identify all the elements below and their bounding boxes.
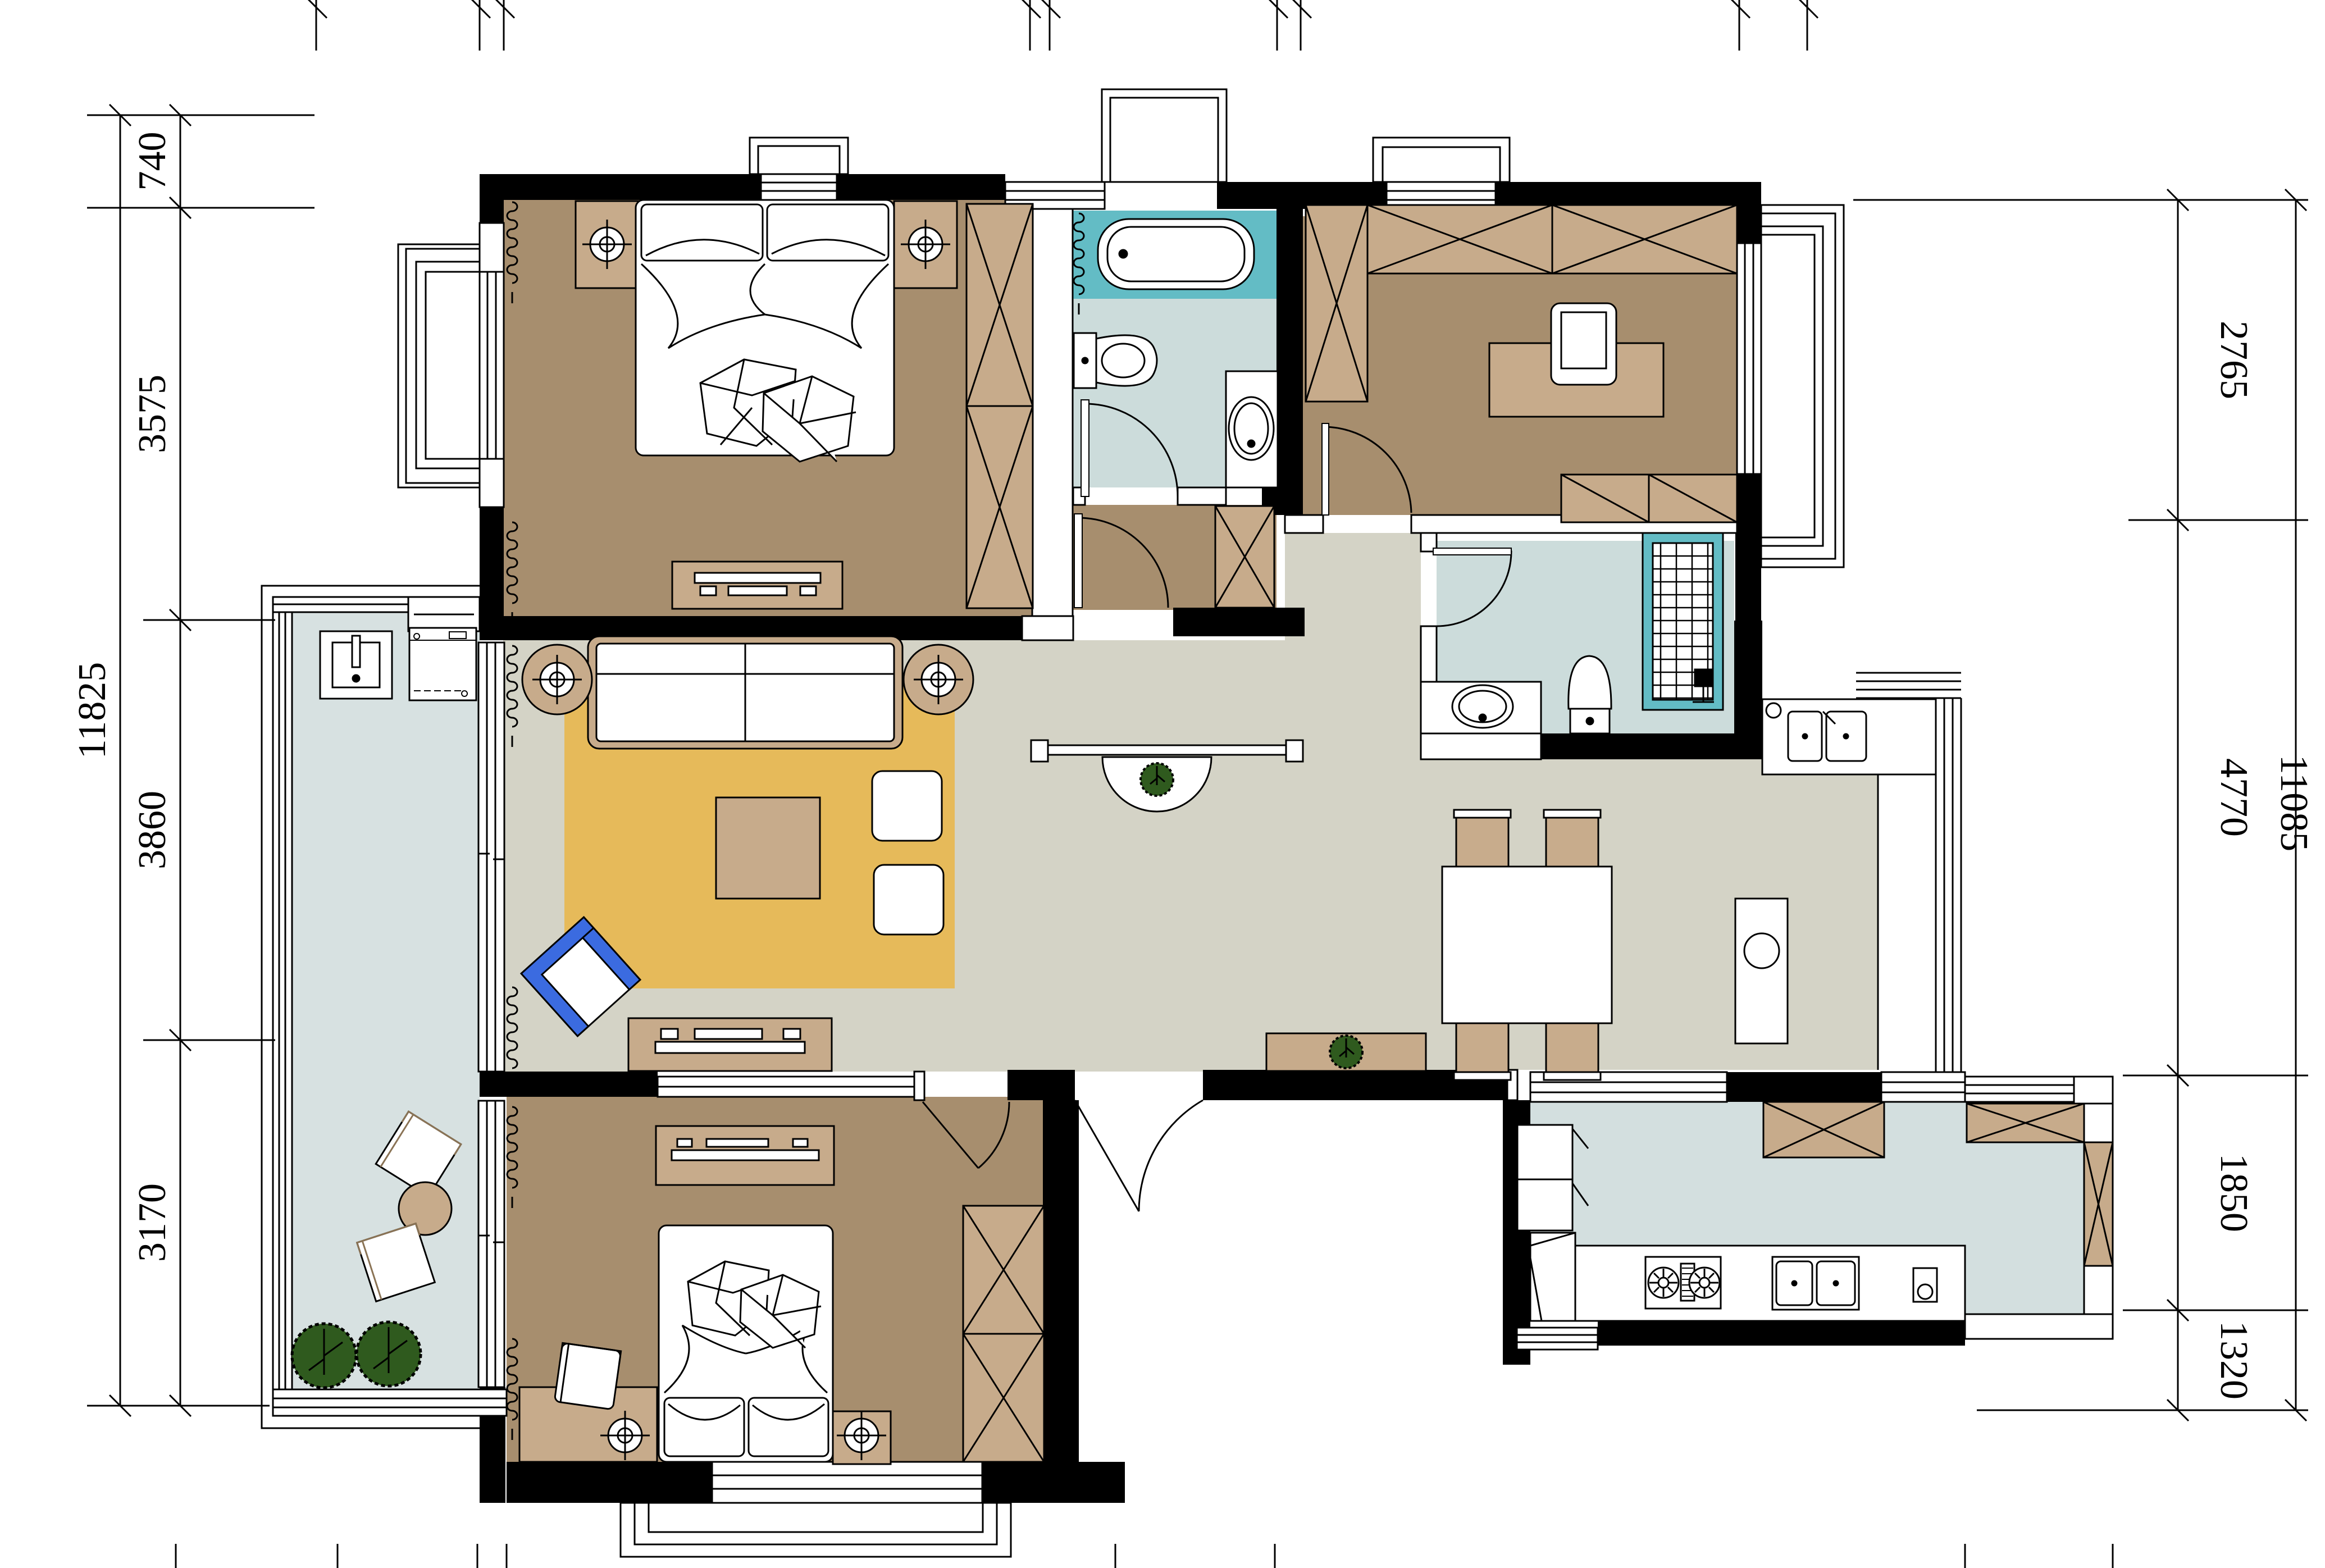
svg-text:11825: 11825 <box>71 662 114 759</box>
svg-text:1850: 1850 <box>2212 1154 2255 1232</box>
svg-text:740: 740 <box>131 132 174 191</box>
svg-text:3170: 3170 <box>131 1183 174 1262</box>
svg-text:4770: 4770 <box>2212 758 2255 837</box>
svg-text:3575: 3575 <box>131 375 174 453</box>
svg-text:11085: 11085 <box>2272 755 2315 851</box>
svg-text:1320: 1320 <box>2212 1321 2255 1400</box>
svg-text:2765: 2765 <box>2212 321 2255 399</box>
svg-text:3860: 3860 <box>131 791 174 869</box>
